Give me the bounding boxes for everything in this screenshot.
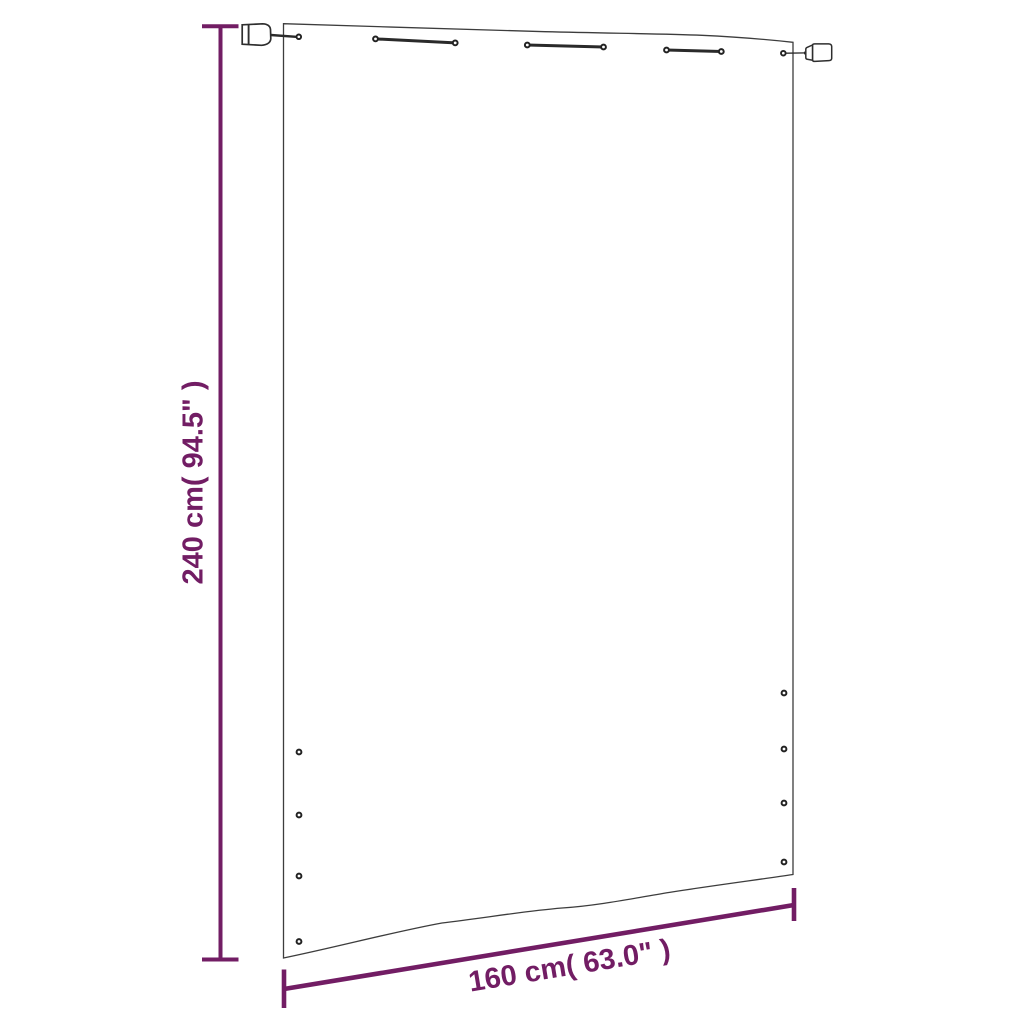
svg-text:240 cm( 94.5" ): 240 cm( 94.5" ) [178,381,210,585]
